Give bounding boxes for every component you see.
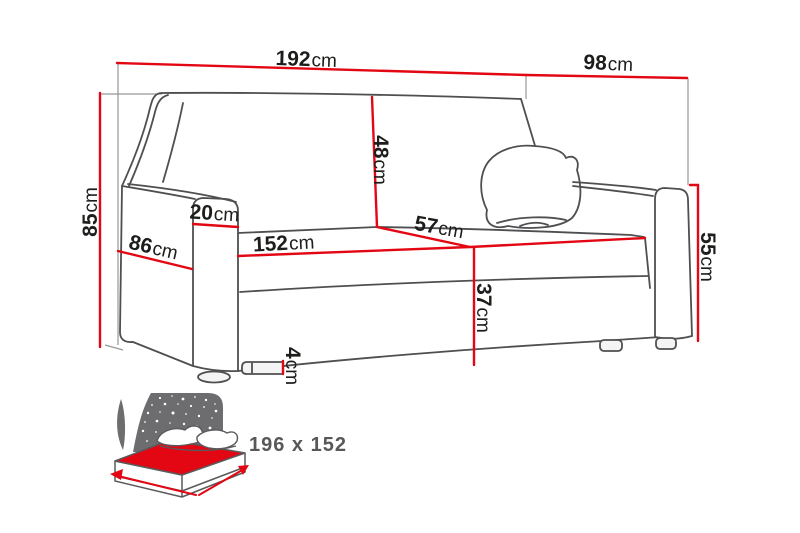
bed-size-label: 196 x 152 [249,434,347,456]
dimension-line-98 [526,75,687,78]
sofa-dimension-diagram: 192cm 98cm 85cm 86cm 20cm 48cm 152cm 57c… [0,0,800,533]
dimension-label-4: 4cm [281,347,304,385]
diagram-canvas: 192cm 98cm 85cm 86cm 20cm 48cm 152cm 57c… [0,0,800,533]
dimension-label-48: 48cm [369,135,392,185]
dimension-label-86: 86cm [127,231,181,265]
bed-icon-crescent [117,399,125,450]
dimension-label-192: 192cm [275,47,337,72]
dimension-label-85: 85cm [79,187,102,237]
guide-tick-bottom-left [105,345,123,350]
dimension-label-98: 98cm [583,51,634,76]
sofa-outline [120,93,692,383]
sofa-pillow [481,146,580,228]
sofa-armrest-right [573,182,692,339]
dimension-label-20: 20cm [189,201,240,227]
dimension-label-152: 152cm [252,230,314,256]
dimension-labels: 192cm 98cm 85cm 86cm 20cm 48cm 152cm 57c… [79,47,719,385]
sofa-legs [198,338,676,383]
dimension-label-57: 57cm [413,212,466,243]
dimension-label-55: 55cm [696,232,719,282]
dimension-label-37: 37cm [472,283,495,333]
bed-icon: 196 x 152 [110,393,347,497]
